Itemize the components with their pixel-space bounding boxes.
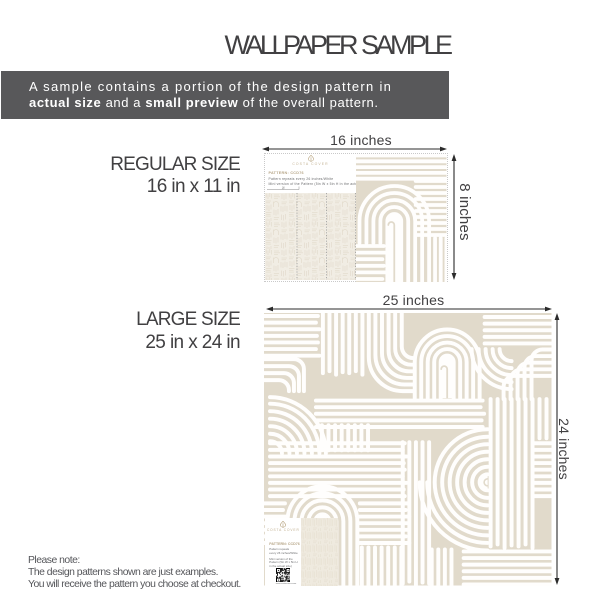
svg-text:26: 26	[282, 187, 285, 190]
